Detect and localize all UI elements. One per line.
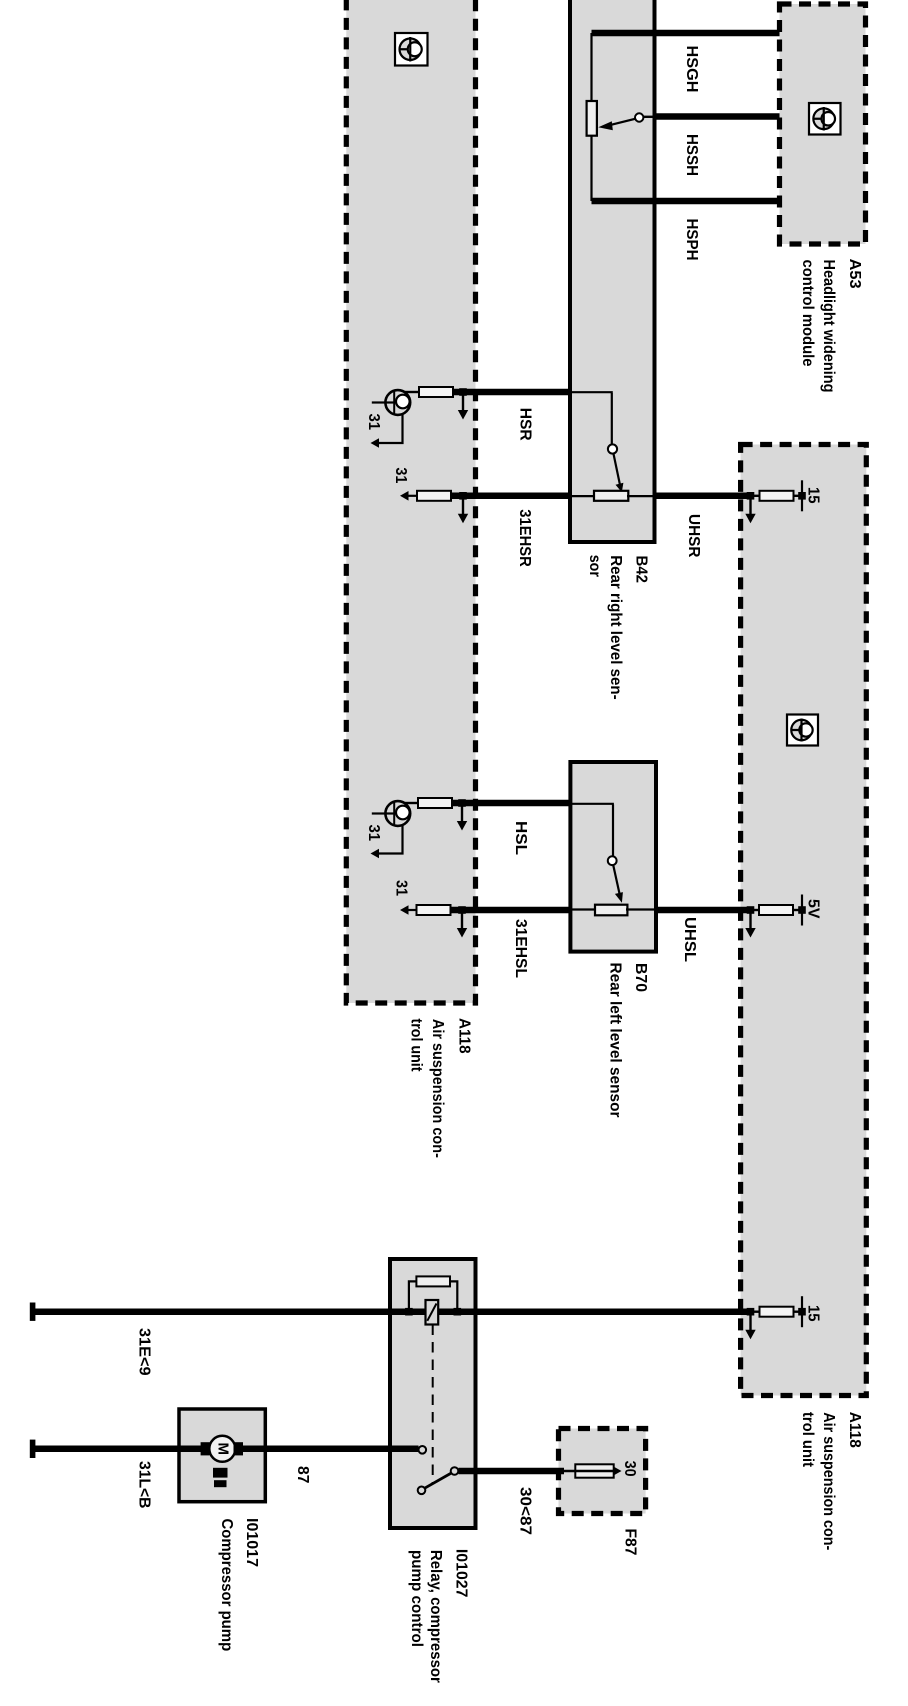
svg-text:pump control: pump control bbox=[408, 1550, 425, 1647]
svg-text:HSGH: HSGH bbox=[683, 46, 700, 93]
svg-text:HSL: HSL bbox=[512, 821, 529, 855]
svg-text:A118: A118 bbox=[846, 1412, 863, 1448]
svg-text:Compressor pump: Compressor pump bbox=[218, 1519, 235, 1652]
svg-text:31EHSL: 31EHSL bbox=[512, 919, 529, 978]
svg-text:Headlight widening: Headlight widening bbox=[820, 260, 837, 393]
svg-text:Rear left level sensor: Rear left level sensor bbox=[606, 963, 623, 1118]
svg-text:UHSR: UHSR bbox=[685, 514, 702, 558]
svg-text:B70: B70 bbox=[632, 963, 649, 992]
svg-text:I01017: I01017 bbox=[243, 1518, 260, 1567]
svg-text:Air suspension con-: Air suspension con- bbox=[429, 1019, 446, 1158]
svg-text:30: 30 bbox=[621, 1461, 638, 1477]
svg-text:A53: A53 bbox=[846, 259, 863, 289]
svg-text:87: 87 bbox=[294, 1466, 311, 1483]
svg-text:31E<9: 31E<9 bbox=[136, 1328, 153, 1376]
svg-text:31: 31 bbox=[365, 825, 382, 842]
svg-text:HSSH: HSSH bbox=[683, 134, 700, 176]
svg-text:I01027: I01027 bbox=[453, 1549, 470, 1598]
svg-text:Relay, compressor: Relay, compressor bbox=[427, 1550, 444, 1683]
svg-text:31EHSR: 31EHSR bbox=[516, 509, 533, 567]
svg-text:31: 31 bbox=[393, 880, 410, 896]
svg-text:B42: B42 bbox=[632, 556, 649, 584]
svg-text:Air suspension con-: Air suspension con- bbox=[820, 1412, 837, 1550]
svg-text:A118: A118 bbox=[455, 1018, 472, 1054]
svg-text:M: M bbox=[214, 1443, 231, 1456]
svg-text:30<87: 30<87 bbox=[517, 1487, 534, 1535]
svg-text:control module: control module bbox=[799, 260, 816, 367]
svg-text:HSR: HSR bbox=[517, 408, 534, 441]
svg-text:F87: F87 bbox=[622, 1529, 639, 1556]
svg-text:sor: sor bbox=[586, 555, 603, 577]
svg-text:trol unit: trol unit bbox=[408, 1019, 425, 1073]
svg-text:31: 31 bbox=[392, 467, 409, 483]
svg-text:15: 15 bbox=[805, 1305, 822, 1322]
svg-text:UHSL: UHSL bbox=[681, 917, 698, 962]
svg-text:31: 31 bbox=[365, 414, 382, 431]
svg-text:15: 15 bbox=[805, 487, 822, 504]
svg-text:31L<B: 31L<B bbox=[136, 1461, 153, 1509]
svg-text:HSPH: HSPH bbox=[683, 219, 700, 261]
svg-text:5V: 5V bbox=[805, 899, 822, 919]
svg-text:Rear right level sen-: Rear right level sen- bbox=[607, 555, 624, 700]
svg-text:trol unit: trol unit bbox=[799, 1412, 816, 1468]
